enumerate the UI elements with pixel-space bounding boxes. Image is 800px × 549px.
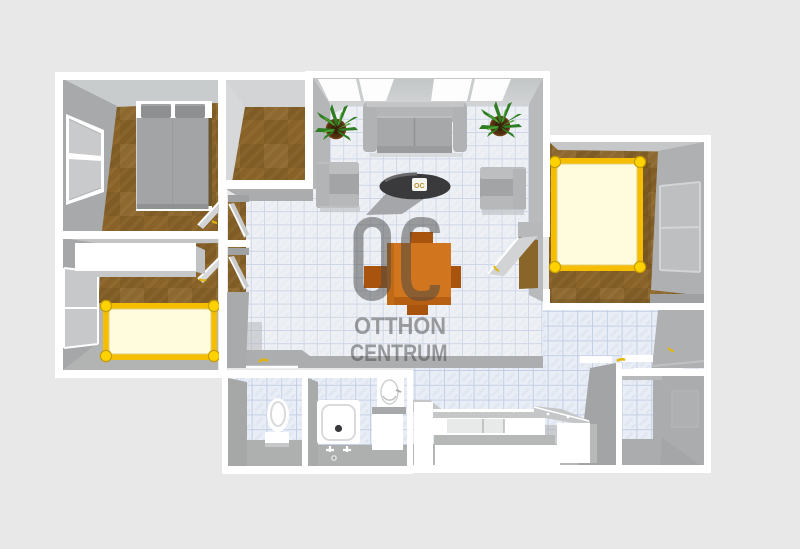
svg-text:OC: OC: [414, 183, 425, 190]
svg-text:OTTHON: OTTHON: [354, 313, 446, 340]
svg-text:CENTRUM: CENTRUM: [350, 340, 448, 367]
